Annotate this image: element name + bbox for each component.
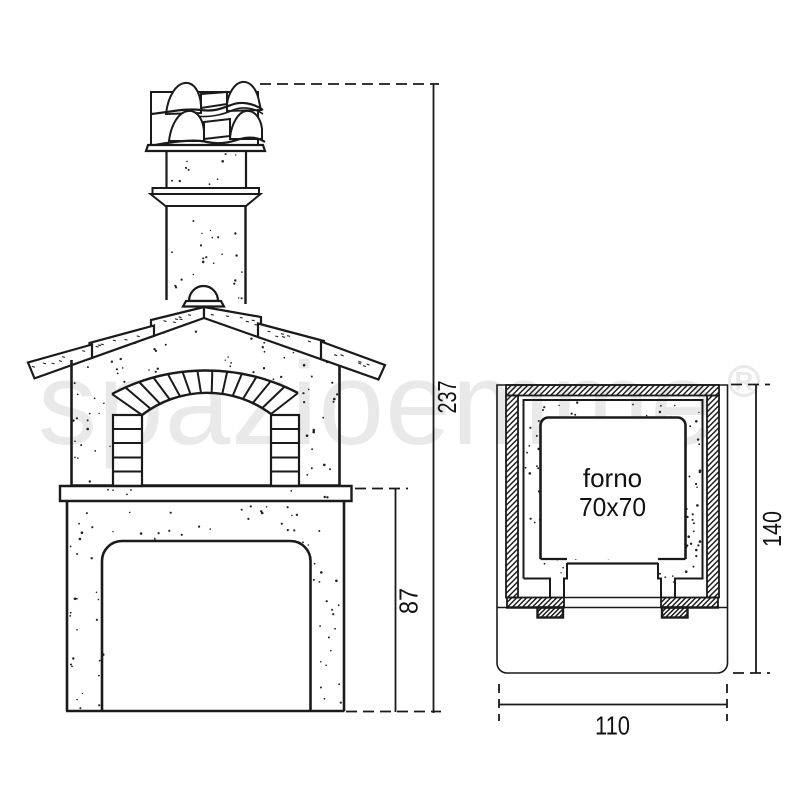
svg-text:forno: forno [583, 463, 642, 493]
svg-text:70x70: 70x70 [579, 492, 646, 522]
svg-text:237: 237 [434, 381, 462, 414]
svg-text:87: 87 [396, 588, 424, 614]
svg-text:R: R [735, 366, 754, 396]
svg-text:140: 140 [759, 511, 787, 547]
svg-text:110: 110 [595, 711, 630, 741]
